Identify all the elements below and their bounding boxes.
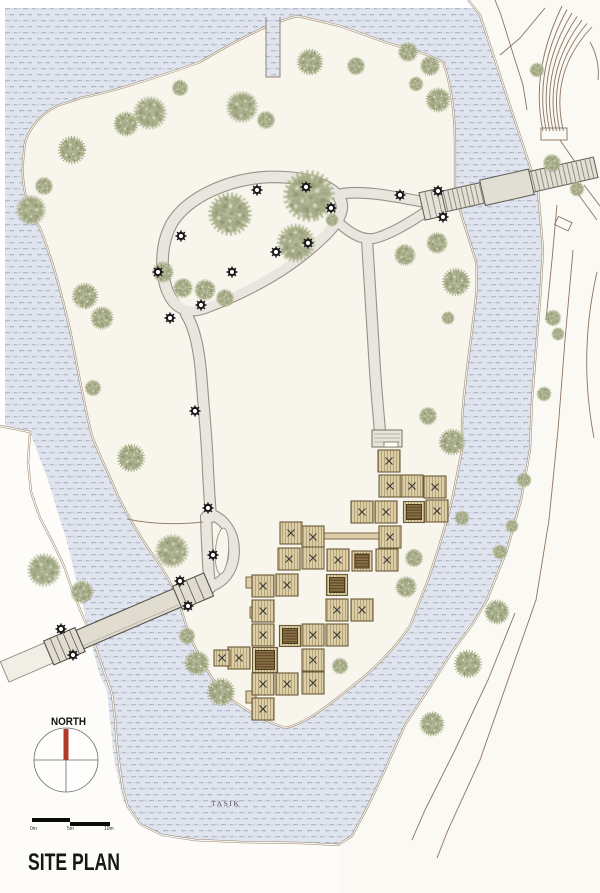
svg-text:10m: 10m: [104, 826, 114, 832]
svg-text:5m: 5m: [67, 826, 74, 832]
svg-text:NORTH: NORTH: [51, 716, 86, 728]
svg-text:TASIK: TASIK: [211, 799, 240, 808]
svg-text:0m: 0m: [30, 826, 37, 832]
svg-text:SITE PLAN: SITE PLAN: [28, 849, 120, 876]
